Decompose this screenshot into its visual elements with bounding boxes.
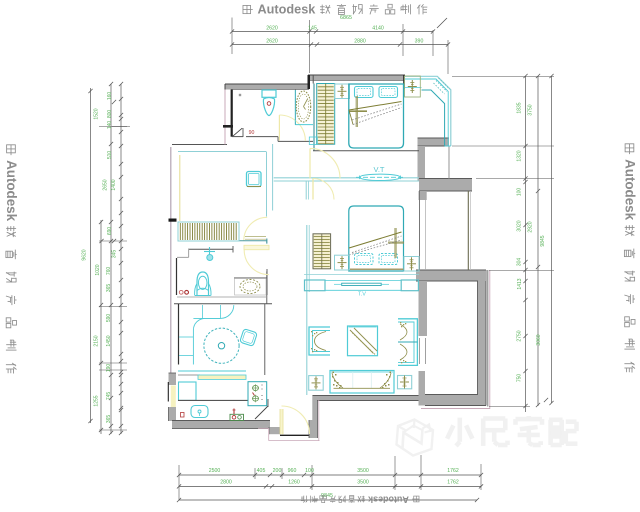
svg-text:3750: 3750 (528, 104, 534, 115)
svg-text:2880: 2880 (354, 39, 366, 45)
svg-text:1260: 1260 (288, 480, 300, 486)
svg-text:1255: 1255 (94, 395, 100, 406)
svg-text:100: 100 (305, 468, 314, 474)
svg-text:510: 510 (107, 151, 113, 160)
svg-text:3500: 3500 (357, 468, 369, 474)
svg-text:Autodesk: Autodesk (367, 494, 409, 504)
svg-text:3500: 3500 (357, 480, 369, 486)
svg-text:750: 750 (517, 374, 523, 383)
svg-text:745: 745 (106, 392, 112, 401)
svg-text:190: 190 (106, 364, 112, 373)
svg-text:1762: 1762 (447, 468, 459, 474)
svg-text:1413: 1413 (517, 278, 523, 289)
svg-text:2650: 2650 (103, 179, 109, 190)
svg-text:1835: 1835 (517, 102, 523, 113)
svg-text:200: 200 (273, 468, 282, 474)
svg-text:Autodesk: Autodesk (4, 160, 19, 221)
svg-text:140: 140 (107, 121, 113, 130)
svg-text:1400: 1400 (111, 179, 117, 190)
svg-text:1450: 1450 (106, 335, 112, 346)
svg-text:2750: 2750 (517, 330, 523, 341)
svg-text:2500: 2500 (209, 468, 221, 474)
svg-text:100: 100 (517, 188, 523, 197)
svg-text:1762: 1762 (447, 480, 459, 486)
svg-text:4140: 4140 (372, 26, 384, 32)
svg-text:160: 160 (107, 92, 113, 101)
svg-text:590: 590 (106, 314, 112, 323)
svg-text:3020: 3020 (517, 220, 523, 231)
svg-text:2620: 2620 (266, 39, 278, 45)
svg-text:9620: 9620 (82, 249, 88, 260)
svg-text:2800: 2800 (220, 480, 232, 486)
svg-text:9845: 9845 (540, 235, 546, 246)
svg-text:365: 365 (106, 284, 112, 293)
svg-text:2150: 2150 (94, 335, 100, 346)
svg-text:405: 405 (257, 468, 266, 474)
svg-text:760: 760 (106, 267, 112, 276)
svg-text:960: 960 (288, 468, 297, 474)
svg-text:1020: 1020 (95, 264, 101, 275)
svg-text:90: 90 (249, 130, 255, 136)
svg-text:2920: 2920 (528, 221, 534, 232)
svg-text:2620: 2620 (266, 26, 278, 32)
svg-text:690: 690 (107, 227, 113, 236)
svg-text:3060: 3060 (536, 334, 542, 345)
svg-text:1520: 1520 (94, 108, 100, 119)
svg-text:390: 390 (415, 39, 424, 45)
svg-text:Autodesk: Autodesk (622, 159, 637, 220)
svg-text:304: 304 (517, 258, 523, 267)
svg-text:365: 365 (106, 415, 112, 424)
svg-text:145: 145 (308, 26, 317, 32)
svg-text:V.T: V.T (374, 165, 385, 174)
svg-text:T.V: T.V (358, 292, 366, 298)
svg-text:6865: 6865 (340, 15, 352, 21)
svg-text:345: 345 (112, 250, 118, 259)
svg-text:800: 800 (107, 110, 113, 119)
svg-text:1320: 1320 (517, 150, 523, 161)
svg-text:Autodesk: Autodesk (258, 2, 317, 16)
